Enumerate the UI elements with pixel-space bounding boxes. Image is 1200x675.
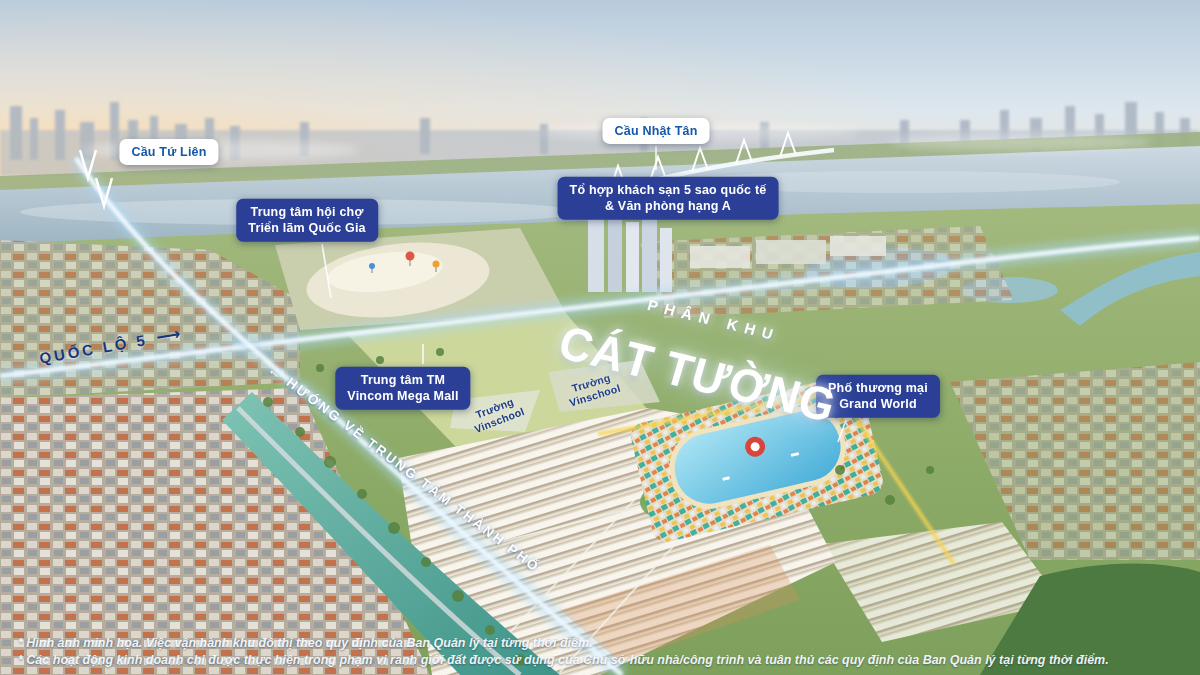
label-hotel-office-complex: Tổ hợp khách sạn 5 sao quốc tế & Văn phò… [558,177,779,220]
disclaimer-line-2: * Các hoạt động kinh doanh chỉ được thực… [18,653,1109,667]
route-arrow-icon: ⟶ [155,323,183,348]
disclaimer-line-1: * Hình ảnh minh họa. Việc vận hành khu đ… [18,636,593,650]
label-cau-tu-lien: Cầu Tứ Liên [119,139,218,165]
label-vincom-mega-mall: Trung tâm TM Vincom Mega Mall [335,367,470,410]
label-cau-nhat-tan: Cầu Nhật Tân [603,118,710,144]
label-exhibition-center: Trung tâm hội chợ Triển lãm Quốc Gia [236,199,378,242]
masterplan-aerial-view: Cầu Tứ Liên Cầu Nhật Tân Tổ hợp khách sạ… [0,0,1200,675]
